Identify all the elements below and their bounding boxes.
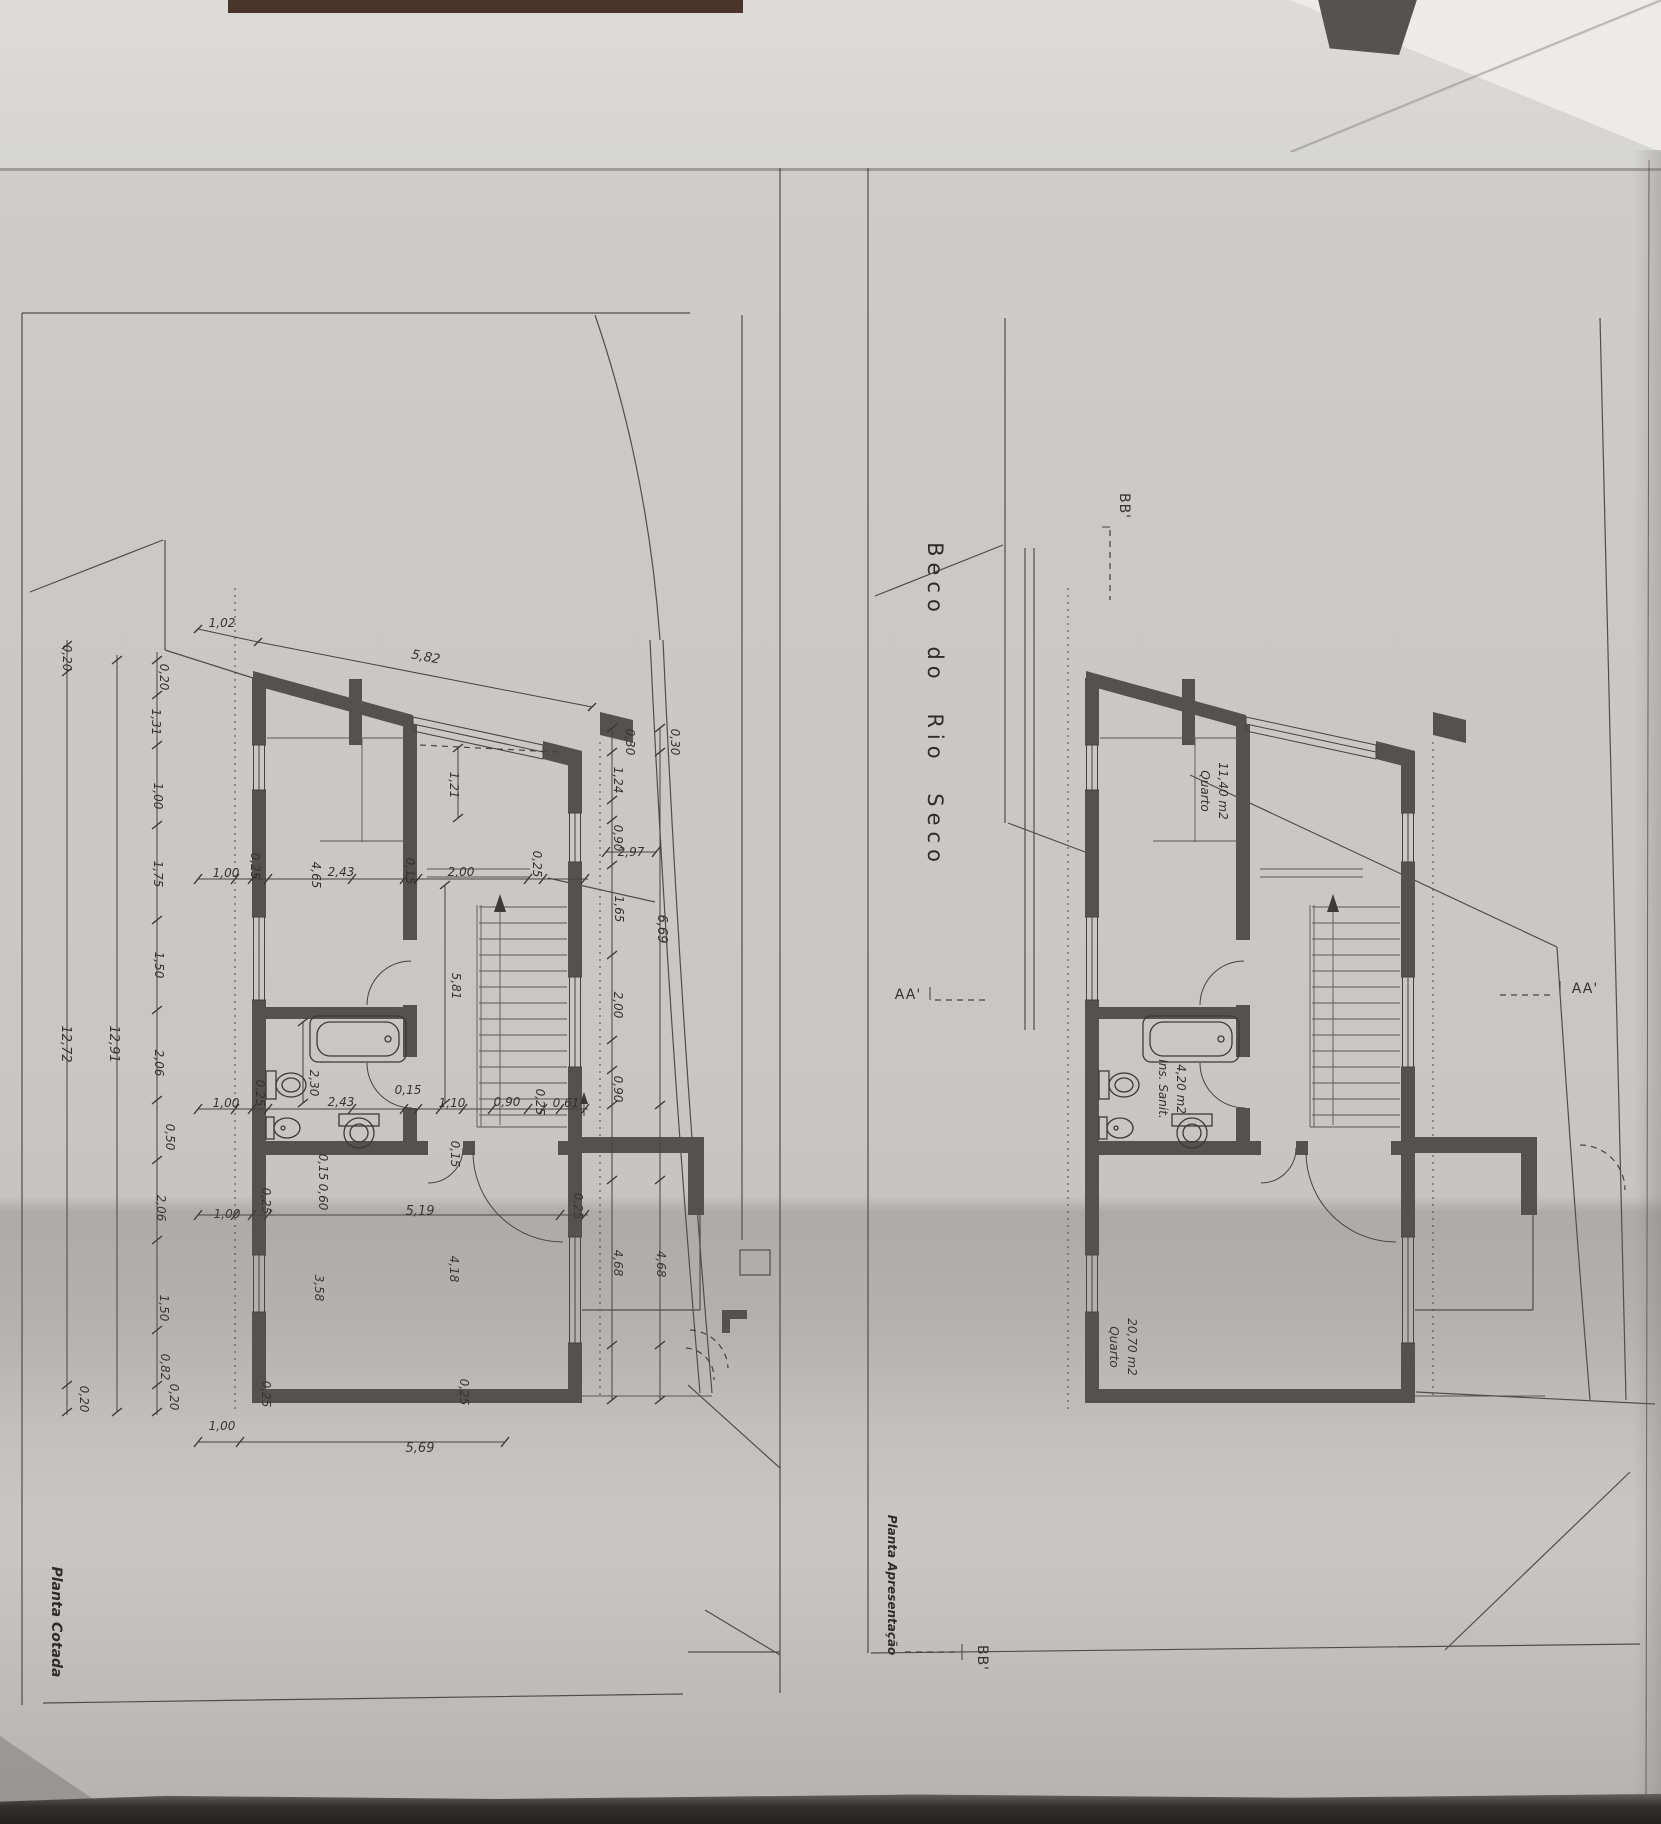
dimension-label-47: 0,25 xyxy=(533,1089,547,1116)
dimension-label-24: 2,06 xyxy=(154,1195,168,1222)
dimension-label-60: 4,68 xyxy=(611,1250,625,1277)
dimension-label-53: 0,30 xyxy=(668,729,682,756)
street-name: Beco do Rio Seco xyxy=(923,542,947,868)
dimension-label-13: 0,20 xyxy=(60,645,74,672)
planta-apresentacao-surroundings xyxy=(1416,1145,1655,1650)
dimension-label-17: 0,20 xyxy=(157,664,171,691)
dimension-label-48: 0,61 xyxy=(553,1096,580,1110)
title-planta-apresentacao: Planta Apresentação xyxy=(885,1515,899,1656)
room-quarto2-name: Quarto xyxy=(1107,1326,1121,1367)
dimension-label-18: 1,31 xyxy=(149,709,163,736)
bidet xyxy=(266,1117,274,1139)
scanned-floor-plan-photo: Beco do Rio SecoPlanta CotadaPlanta Apre… xyxy=(0,0,1661,1824)
dimension-label-26: 0,82 xyxy=(158,1354,172,1381)
dimension-label-41: 0,25 xyxy=(253,1080,267,1107)
dimension-label-44: 0,15 xyxy=(395,1083,422,1097)
stair-up-arrow xyxy=(494,894,506,912)
marker-bb-top: BB' xyxy=(1116,493,1132,519)
dimension-label-63: 5,19 xyxy=(406,1204,435,1219)
dimension-label-49: 0,15 xyxy=(448,1141,462,1168)
marker-aa-left: AA' xyxy=(895,987,921,1003)
planta-apresentacao-walls xyxy=(1085,671,1537,1403)
dimension-label-20: 1,75 xyxy=(151,861,165,888)
dimension-label-21: 1,50 xyxy=(152,952,166,979)
room-quarto2-area: 20,70 m2 xyxy=(1125,1318,1139,1376)
dimension-label-14: 12,72 xyxy=(58,1025,73,1062)
dimension-label-70: 5,69 xyxy=(406,1441,435,1456)
dimension-label-39: 5,81 xyxy=(449,973,463,1000)
marker-bb-bottom: BB' xyxy=(974,1645,990,1671)
dimension-label-54: 1,24 xyxy=(611,767,625,794)
dimension-label-19: 1,00 xyxy=(151,783,165,810)
dimension-label-57: 6,69 xyxy=(654,915,669,944)
bidet xyxy=(1099,1117,1107,1139)
toilet xyxy=(1099,1071,1109,1099)
dimension-label-30: 1,00 xyxy=(213,866,240,880)
planta-apresentacao-stairs xyxy=(1310,894,1400,1127)
dimension-label-36: 0,25 xyxy=(530,851,544,878)
dimension-label-42: 2,30 xyxy=(307,1070,321,1097)
room-quarto1-area: 11,40 m2 xyxy=(1216,762,1230,820)
dimension-label-40: 1,00 xyxy=(213,1096,240,1110)
dimension-label-61: 4,68 xyxy=(654,1251,668,1278)
dimension-label-33: 2,43 xyxy=(328,865,355,879)
dimension-label-62: 0,25 xyxy=(259,1188,273,1215)
dimension-label-34: 0,15 xyxy=(403,858,417,885)
dimension-label-66: 3,58 xyxy=(312,1275,326,1302)
dimension-label-32: 4,65 xyxy=(309,862,323,889)
floor-plan-drawing: Beco do Rio SecoPlanta CotadaPlanta Apre… xyxy=(0,0,1661,1824)
dimension-label-28: 1,02 xyxy=(209,616,236,630)
dimension-label-22: 2,06 xyxy=(152,1050,166,1077)
dimension-label-16: 12,91 xyxy=(106,1025,121,1062)
dimension-label-31: 0,25 xyxy=(248,853,262,880)
dimension-label-38: 1,21 xyxy=(447,772,461,799)
dimension-label-15: 0,20 xyxy=(77,1386,91,1413)
dimension-label-35: 2,00 xyxy=(448,865,475,879)
dimension-label-67: 4,18 xyxy=(447,1256,461,1283)
planta-cotada-stairs xyxy=(477,894,567,1127)
labels-layer: Beco do Rio SecoPlanta CotadaPlanta Apre… xyxy=(48,493,1598,1678)
dimension-label-55: 0,90 xyxy=(611,825,625,852)
dimension-label-71: 1,00 xyxy=(209,1419,236,1433)
dimension-label-50: 0,15 xyxy=(316,1154,330,1181)
room-sanit-area: 4,20 m2 xyxy=(1174,1064,1188,1114)
title-planta-cotada: Planta Cotada xyxy=(48,1567,64,1678)
stair-up-arrow xyxy=(1327,894,1339,912)
dimension-label-45: 1,10 xyxy=(439,1096,466,1110)
room-quarto1-name: Quarto xyxy=(1198,770,1212,811)
dimension-label-29: 5,82 xyxy=(410,647,441,667)
dimension-label-65: 1,00 xyxy=(214,1207,241,1221)
marker-aa-right: AA' xyxy=(1572,981,1598,997)
planta-cotada-bathroom-fixtures xyxy=(266,1016,406,1148)
dimension-label-69: 0,25 xyxy=(457,1379,471,1406)
dimension-label-58: 2,00 xyxy=(611,992,625,1019)
planta-cotada-surroundings xyxy=(582,1215,1533,1655)
dimension-label-25: 1,50 xyxy=(157,1295,171,1322)
dimension-label-64: 0,25 xyxy=(571,1193,585,1220)
sheet-frame-lines xyxy=(22,160,1649,1798)
dimension-label-68: 0,25 xyxy=(259,1381,273,1408)
dimension-label-59: 0,90 xyxy=(611,1076,625,1103)
dimension-label-51: 0,60 xyxy=(316,1184,330,1211)
site-boundary-lines xyxy=(30,315,1626,1410)
dimension-label-56: 1,65 xyxy=(612,896,626,923)
dimension-label-43: 2,43 xyxy=(328,1095,355,1109)
dimension-label-46: 0,90 xyxy=(494,1095,521,1109)
dimension-label-23: 0,50 xyxy=(163,1124,177,1151)
dimension-label-27: 0,20 xyxy=(167,1384,181,1411)
section-marker-lines xyxy=(905,527,1560,1660)
dimension-label-52: 0,30 xyxy=(623,729,637,756)
room-sanit-name: Ins. Sanit. xyxy=(1156,1059,1170,1118)
